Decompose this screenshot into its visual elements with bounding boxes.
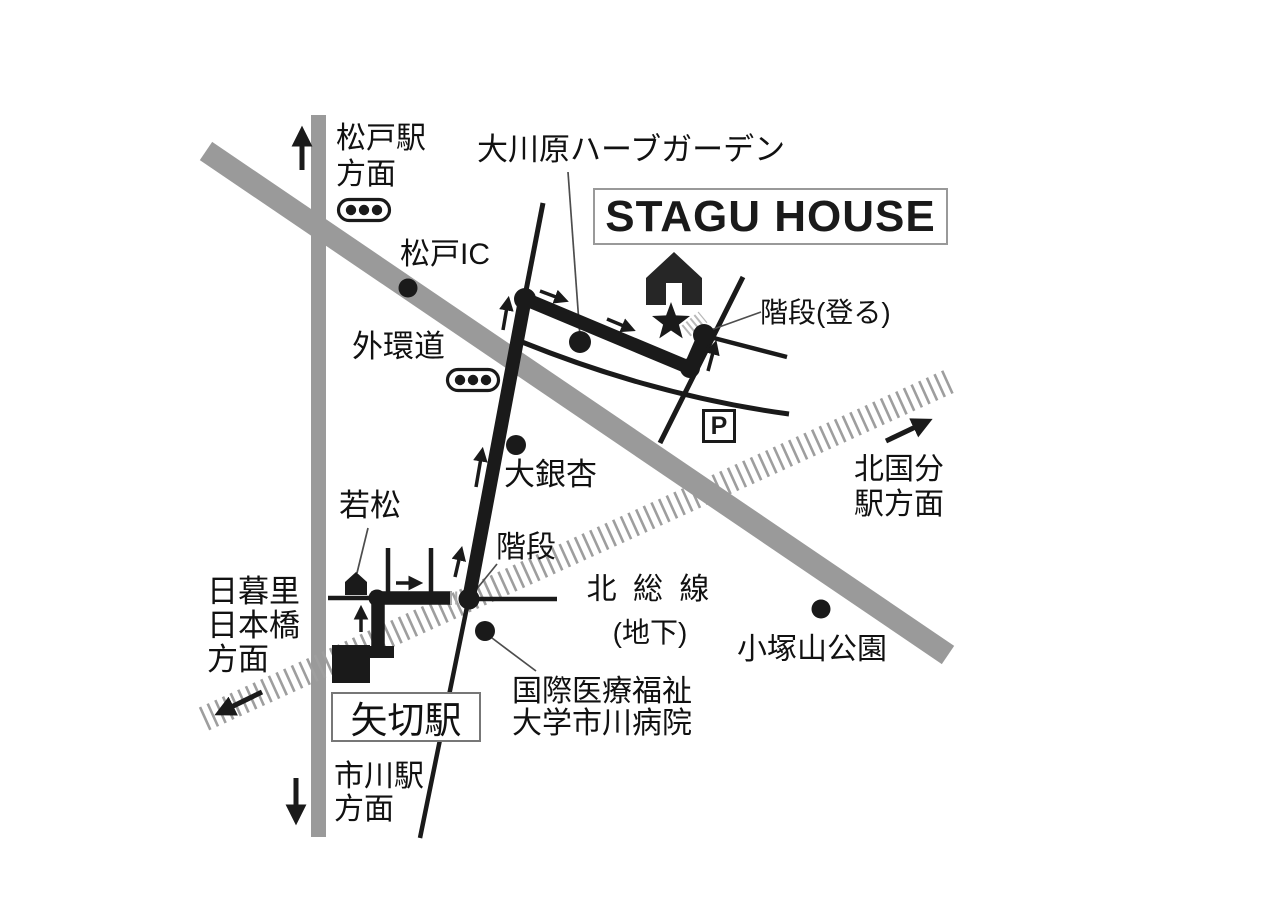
label-matsudo-station-direction: 松戸駅 方面 [336, 121, 426, 193]
arrow-northeast-kitakokubun [886, 422, 926, 441]
route-arrow-up-1 [503, 301, 508, 330]
route-corner-west-dot [369, 590, 386, 607]
route-turn-dot [680, 358, 700, 378]
small-house-icon [345, 572, 367, 595]
yagiri-station-square [332, 645, 370, 683]
star-icon [652, 302, 690, 338]
road-east-stub [706, 336, 787, 357]
house-icon [646, 252, 702, 305]
label-matsudo-ic: 松戸IC [400, 238, 490, 272]
yagiri-station-label: 矢切駅 [331, 692, 481, 742]
traffic-light-icon [339, 200, 390, 221]
label-hospital: 国際医療福祉 大学市川病院 [512, 676, 692, 741]
label-nippori-direction: 日暮里 日本橋 方面 [207, 575, 300, 677]
label-hokuso-line-name: 北 総 線 [583, 564, 717, 608]
route-arrow-right-1 [540, 291, 564, 300]
wakamatsu-leader [357, 528, 368, 573]
park-dot [812, 600, 831, 619]
label-hokuso-line-sub: (地下) [583, 611, 717, 651]
route-arrow-up-3 [476, 452, 482, 487]
label-kitakokubun-direction: 北国分 駅方面 [854, 452, 944, 522]
route-foot [370, 646, 394, 658]
stairs-up-leader [708, 312, 761, 331]
road-north-of-corner [524, 203, 543, 301]
parking-icon: P [702, 409, 736, 443]
label-gaikando: 外環道 [352, 330, 445, 365]
junction-dot [459, 589, 480, 610]
label-hokuso-line: 北 総 線 (地下) [583, 564, 717, 651]
label-stairs-up: 階段(登る) [760, 297, 891, 328]
traffic-light-icon [448, 370, 499, 391]
matsudo-ic-dot [399, 279, 418, 298]
label-big-ginkgo: 大銀杏 [504, 458, 597, 493]
access-map: STAGU HOUSE 矢切駅 P 松戸駅 方面 大川原ハーブガーデン 階段(登… [0, 0, 1279, 913]
big-ginkgo-dot [506, 435, 526, 455]
label-okawara-herb-garden: 大川原ハーブガーデン [477, 133, 785, 168]
label-ichikawa-direction: 市川駅 方面 [334, 760, 424, 826]
route-arrow-up-4 [455, 551, 461, 577]
hospital-dot [475, 621, 495, 641]
label-stairs: 階段 [496, 531, 556, 565]
stagu-house-title: STAGU HOUSE [593, 188, 948, 245]
label-wakamatsu: 若松 [339, 489, 401, 524]
label-kozukayama-park: 小塚山公園 [737, 633, 887, 667]
hospital-leader [492, 638, 536, 671]
route-corner-dot [514, 288, 536, 310]
stairs-top-dot [693, 324, 715, 346]
herb-garden-dot [569, 331, 591, 353]
